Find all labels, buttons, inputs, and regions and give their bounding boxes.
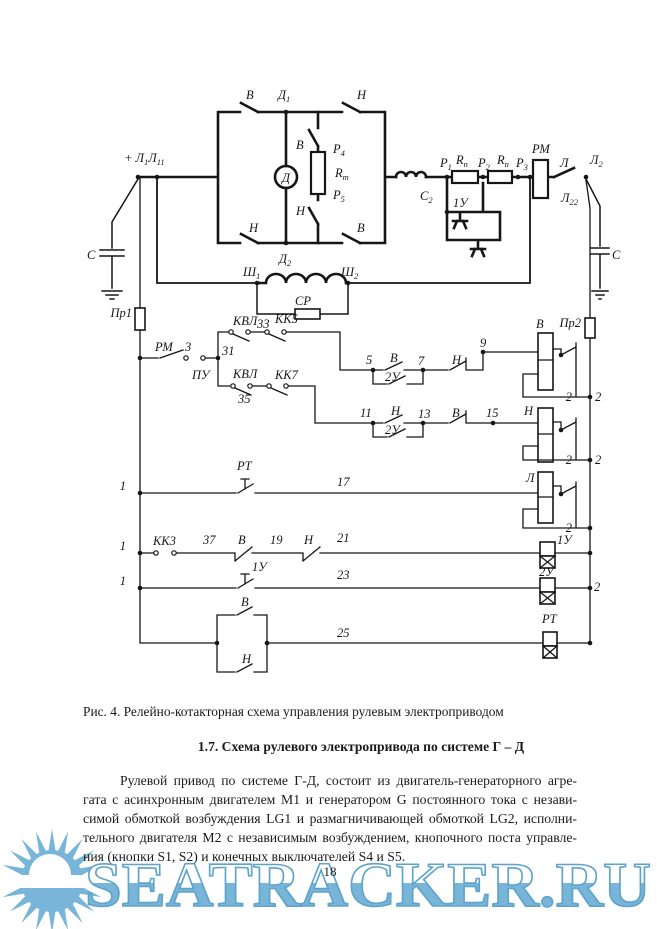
schematic-label: В [390, 351, 398, 365]
schematic-label: 1 [120, 539, 126, 553]
schematic-label: Н [241, 652, 252, 666]
paragraph-line: тельного двигателя М2 с независимым возб… [83, 829, 577, 848]
schematic-label: С [87, 248, 96, 262]
schematic-label: 2 [566, 453, 572, 467]
schematic-label: Д1​ [277, 88, 290, 104]
schematic-label: В [238, 533, 246, 547]
schematic-label: 13 [418, 407, 431, 421]
schematic-label: Н [390, 404, 401, 418]
starting-resistor-1 [452, 171, 478, 183]
junction-dot [284, 241, 289, 246]
power-circuit [100, 103, 609, 319]
junction-dot [138, 551, 143, 556]
schematic-label: Н [248, 221, 259, 235]
schematic-label: С [612, 248, 621, 262]
schematic-label: 2 [566, 390, 572, 404]
schematic-label: Rт​ [334, 166, 349, 182]
plug-terminals [154, 330, 288, 555]
schematic-label: Н [303, 533, 314, 547]
schematic-label: 2 [595, 390, 601, 404]
shunt-feed-wire [157, 177, 257, 283]
paragraph-line: Рулевой привод по системе Г-Д, состоит и… [83, 772, 577, 791]
schematic-label: 35 [237, 392, 251, 406]
fuse-pr2 [585, 318, 595, 338]
junction-dot [421, 368, 426, 373]
schematic-label: СР [295, 294, 311, 308]
junction-dot [265, 641, 270, 646]
fuse-pr1 [135, 308, 145, 330]
schematic-label: Д2​ [278, 252, 292, 268]
schematic-label: КВЛ [232, 367, 259, 381]
schematic-label: 1 [120, 479, 126, 493]
schematic-label: РТ [541, 612, 558, 626]
schematic-label: С2​ [420, 189, 433, 205]
junction-dot [588, 586, 593, 591]
schematic-label: 31 [221, 344, 235, 358]
schematic-label: + Л1​Л11​ [124, 151, 165, 167]
schematic-label: 2У [385, 370, 401, 384]
schematic-label: 2У [539, 565, 555, 579]
junction-dot [481, 350, 486, 355]
junction-dot [559, 492, 564, 497]
schematic-label: Л [559, 156, 570, 170]
section-heading: 1.7. Схема рулевого электропривода по си… [83, 739, 577, 755]
coil-rt [543, 632, 557, 646]
schematic-label: 3 [184, 340, 191, 354]
junction-dot [559, 428, 564, 433]
schematic-label: КВЛ [232, 314, 259, 328]
control-circuit [135, 110, 595, 672]
shunt-return-wire [348, 179, 530, 283]
rm-contact-row [140, 350, 218, 358]
schematic-label: 7 [418, 354, 425, 368]
schematic-label: Л22​ [560, 191, 579, 207]
schematic-label: В [357, 221, 365, 235]
schematic-label: Р3​ [515, 156, 528, 172]
schematic-label: Н [523, 404, 534, 418]
schematic-label: 15 [486, 406, 499, 420]
starting-resistor-2 [488, 171, 512, 183]
junction-dot [528, 175, 533, 180]
junction-dot [421, 421, 426, 426]
junction-dot [588, 551, 593, 556]
schematic-label: КК7 [274, 368, 299, 382]
schematic-label: Пр2 [558, 316, 581, 330]
junction-dot [445, 175, 450, 180]
schematic-label: 1У [252, 560, 268, 574]
junction-dot [588, 458, 593, 463]
schematic-label: РМ [531, 142, 550, 156]
schematic-label: В [246, 88, 254, 102]
junction-dot [445, 210, 450, 215]
schematic-label: 2 [594, 580, 600, 594]
junction-dot [491, 421, 496, 426]
paragraph-line: гата с асинхронным двигателем М1 и генер… [83, 791, 577, 810]
bypass-1u-loop [447, 177, 500, 256]
rm-relay-box [533, 160, 548, 198]
junction-dot [371, 421, 376, 426]
document-page: { "figure": { "caption": "Рис. 4. Релейн… [0, 0, 657, 929]
schematic-label: 1У [557, 533, 573, 547]
page-number: 18 [83, 864, 577, 880]
schematic-label: 17 [337, 475, 350, 489]
coil-1u [540, 542, 555, 556]
schematic-label: Р4​ [332, 142, 346, 158]
body-paragraph: Рулевой привод по системе Г-Д, состоит и… [83, 772, 577, 867]
junction-dot [255, 281, 260, 286]
schematic-label: 1У [453, 196, 469, 210]
schematic-label: Н [356, 88, 367, 102]
schematic-label: В [241, 595, 249, 609]
junction-dot [216, 356, 221, 361]
schematic-label: ПУ [191, 368, 211, 382]
pr2-feed [586, 180, 590, 318]
schematic-label: Rп​ [455, 153, 468, 169]
schematic-label: В [296, 138, 304, 152]
shunt-field-winding [257, 274, 348, 283]
schematic-label: РТ [236, 459, 253, 473]
coil-2u [540, 578, 555, 592]
junction-dot [138, 586, 143, 591]
schematic-label: Ш2​ [340, 265, 359, 281]
left-capacitor-branch [100, 179, 138, 299]
schematic-label: 1 [120, 574, 126, 588]
schematic-label: В [536, 317, 544, 331]
schematic-label: 21 [337, 531, 350, 545]
junction-dot [136, 175, 141, 180]
schematic-label: В [452, 406, 460, 420]
junction-dot [371, 368, 376, 373]
vn-parallel-box [217, 607, 543, 672]
schematic-label: 9 [480, 336, 487, 350]
schematic-label: 19 [270, 533, 283, 547]
junction-dot [588, 395, 593, 400]
schematic-label: РМ [154, 340, 173, 354]
smoothing-inductor [396, 172, 426, 177]
junction-dot [215, 641, 220, 646]
schematic-label: Ш1​ [242, 265, 260, 281]
figure-caption: Рис. 4. Релейно-котакторная схема управл… [83, 704, 583, 720]
schematic-label: Н [295, 204, 306, 218]
junction-dot [138, 356, 143, 361]
schematic-label: Р5​ [332, 188, 345, 204]
junction-dot [588, 526, 593, 531]
schematic-label: Р2​ [477, 156, 491, 172]
schematic-label: Л2​ [589, 153, 603, 169]
junction-dot [516, 175, 521, 180]
junction-dot [155, 175, 160, 180]
junction-dot [284, 110, 289, 115]
schematic-label: Д [281, 171, 291, 185]
schematic-label: 11 [360, 406, 372, 420]
paragraph-line: симой обмоткой возбуждения LG1 и размагн… [83, 810, 577, 829]
schematic-label: Rп​ [496, 153, 509, 169]
schematic-label: Пр1 [109, 306, 132, 320]
schematic-label: 23 [337, 568, 350, 582]
schematic-label: Л [525, 471, 536, 485]
schematic-label: 5 [366, 353, 372, 367]
schematic-label: 33 [256, 317, 270, 331]
junction-dot [584, 175, 589, 180]
schematic-label: 25 [337, 626, 350, 640]
left-bus [140, 177, 217, 643]
junction-dot [481, 175, 486, 180]
row-kk3 [140, 547, 540, 561]
junction-dot [138, 491, 143, 496]
schematic-label: КК5 [274, 312, 298, 326]
junction-dot [346, 281, 351, 286]
schematic-label: 37 [202, 533, 216, 547]
schematic-label: Р1​ [439, 156, 452, 172]
schematic-label: 2 [595, 453, 601, 467]
junction-dot [588, 641, 593, 646]
schematic-label: Н [451, 353, 462, 367]
junction-dot [559, 353, 564, 358]
schematic-label: КК3 [152, 534, 176, 548]
schematic-label: 2 [566, 521, 572, 535]
coil-v [538, 333, 553, 390]
coil-n [538, 408, 553, 462]
braking-resistor [311, 152, 325, 194]
sr-resistor [295, 309, 320, 319]
schematic-label: 2У [385, 423, 401, 437]
